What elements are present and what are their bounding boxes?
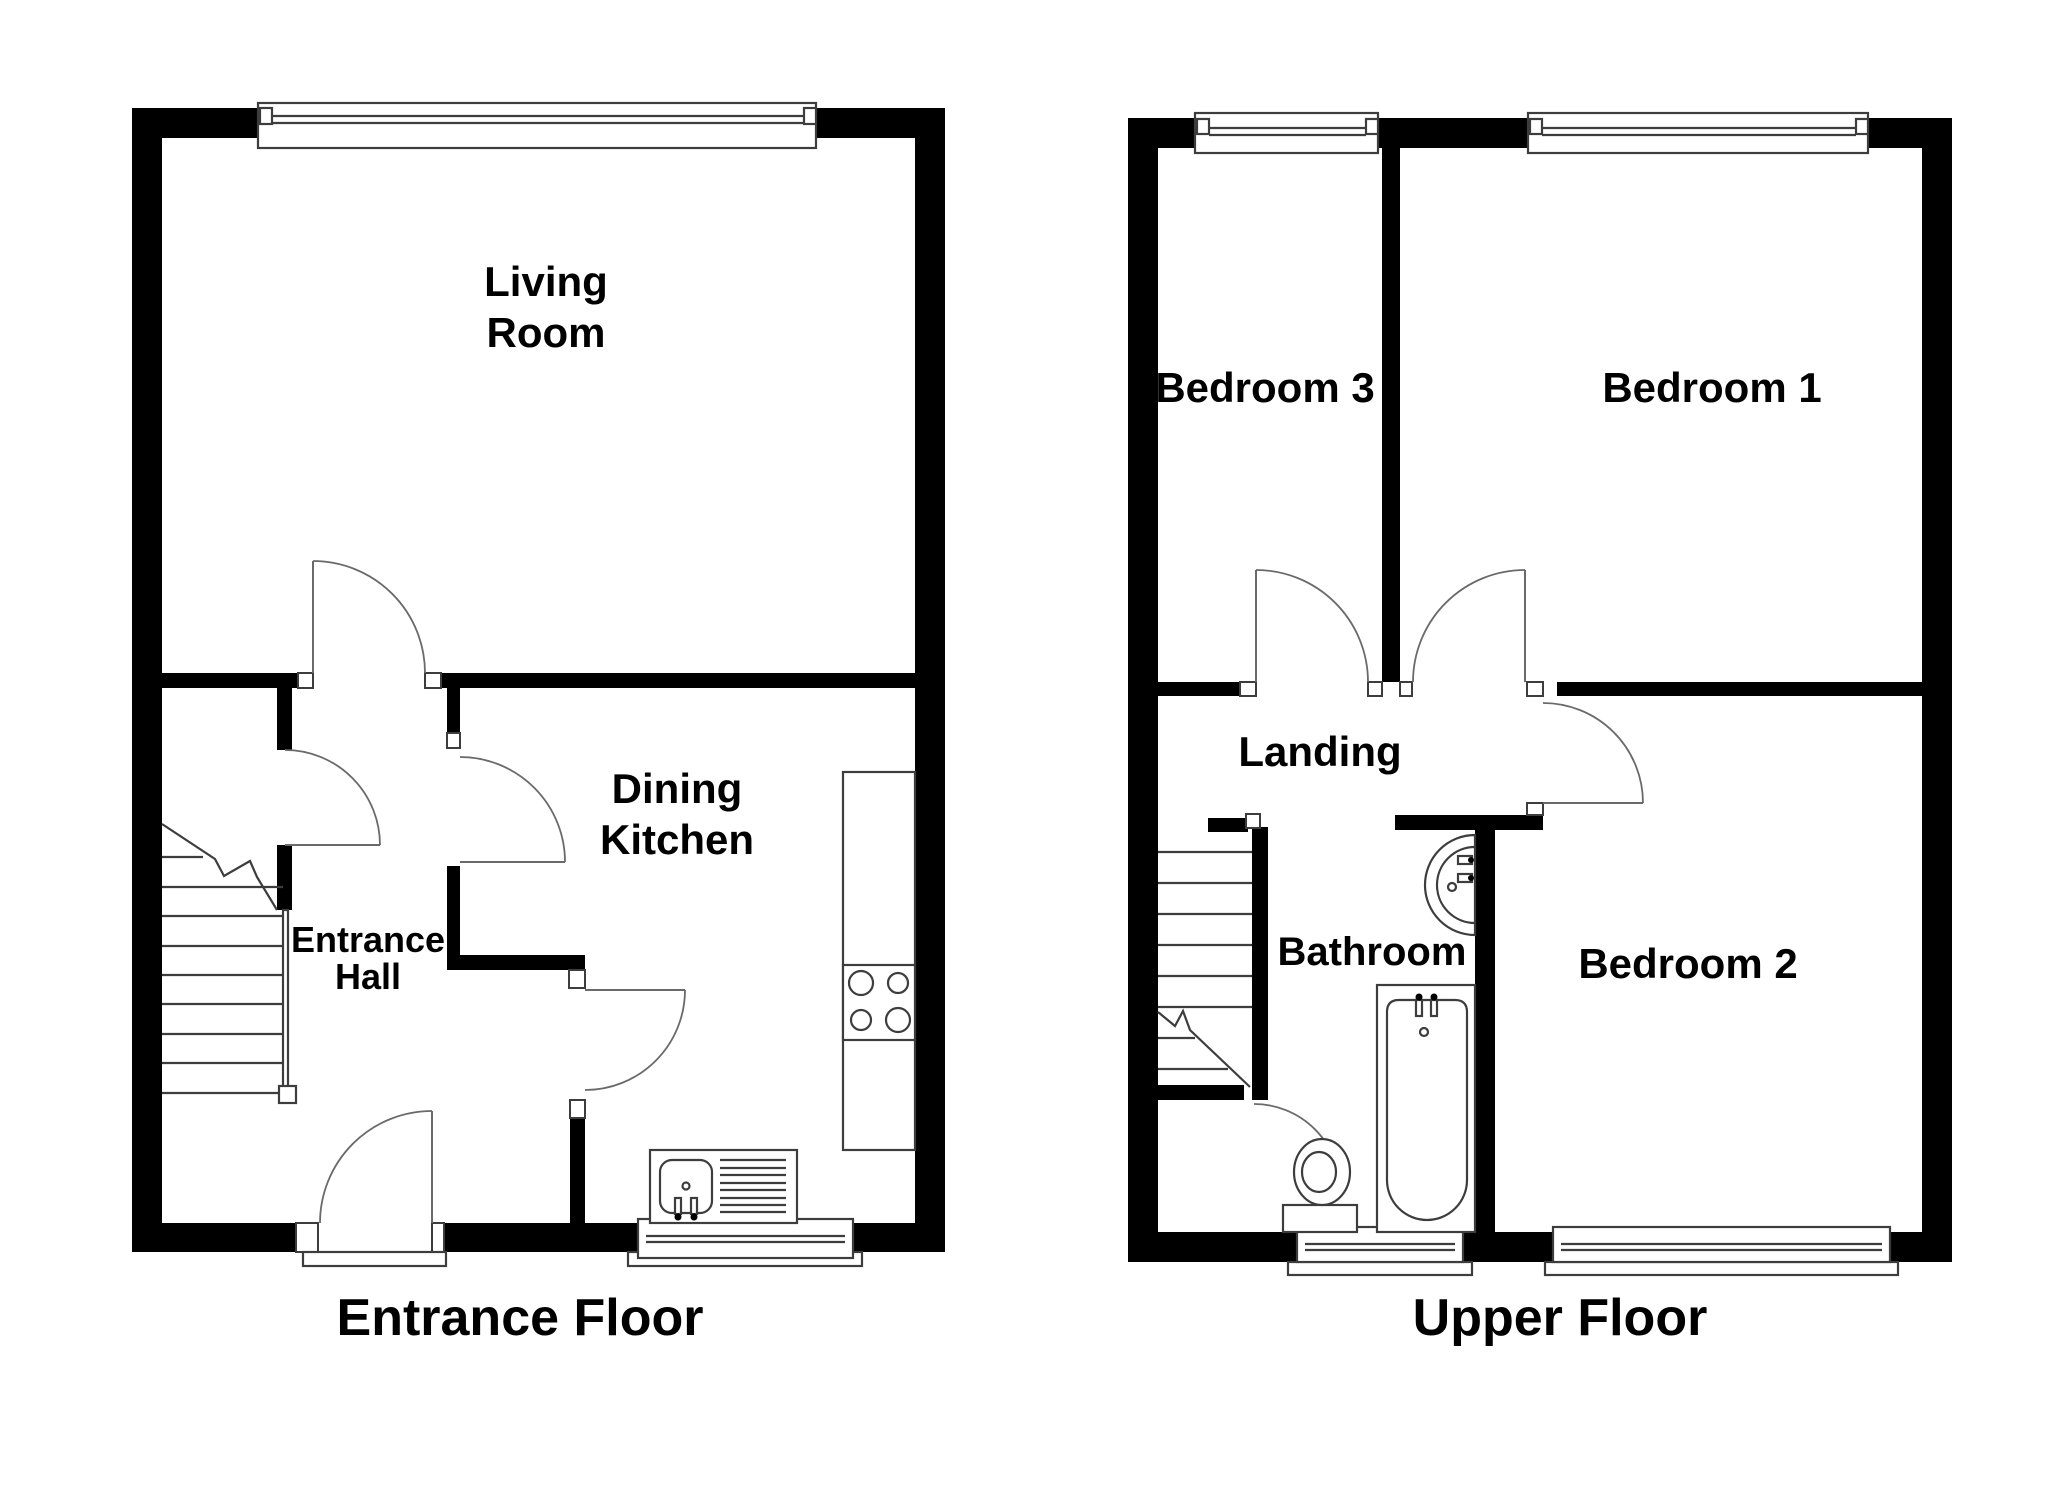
bathroom-window-icon [1288,1227,1472,1275]
entrance-interior-walls [162,673,915,1223]
upper-staircase-icon [1158,852,1252,1087]
staircase-icon [162,824,296,1103]
kitchen-door-icon [460,757,565,862]
upper-floor: Bedroom 3 Bedroom 1 Landing Bathroom Bed… [1128,113,1952,1347]
bedroom1-door-icon [1413,570,1525,682]
entrance-hall-label-2: Hall [335,956,401,997]
landing-label: Landing [1238,728,1401,775]
bedroom3-window-icon [1195,113,1378,153]
bedroom1-window-icon [1528,113,1868,153]
bedroom1-label: Bedroom 1 [1602,364,1821,411]
dining-kitchen-label: Dining [612,765,743,812]
floor-plan-canvas: Living Room Dining Kitchen Entrance Hall… [0,0,2048,1489]
living-room-label: Living [484,258,608,305]
floorplan-page: Living Room Dining Kitchen Entrance Hall… [0,0,2048,1489]
bedroom3-door-icon [1256,570,1368,682]
upper-floor-title: Upper Floor [1413,1289,1708,1347]
bathroom-label: Bathroom [1278,930,1467,974]
living-room-label-2: Room [487,309,606,356]
entrance-hall-label: Entrance [291,919,445,960]
living-room-window-icon [258,103,816,148]
bedroom2-window-icon [1545,1227,1898,1275]
entrance-floor: Living Room Dining Kitchen Entrance Hall… [132,103,945,1347]
dining-kitchen-label-2: Kitchen [600,816,754,863]
toilet-icon [1283,1139,1357,1232]
stairs-door-icon [285,750,380,845]
kitchen-window-icon [628,1219,862,1266]
kitchen-sink-icon [650,1150,797,1223]
porch-step-icon [303,1252,446,1266]
kitchen-counter-icon [843,772,915,1150]
basin-icon [1425,835,1475,935]
bedroom2-door-icon [1543,703,1643,803]
hall-kitchen-door-icon [585,990,685,1090]
bedroom2-label: Bedroom 2 [1578,940,1797,987]
bath-icon [1377,985,1475,1232]
bedroom3-label: Bedroom 3 [1155,364,1374,411]
entrance-floor-title: Entrance Floor [337,1289,704,1347]
living-room-door-icon [313,561,425,673]
front-door-icon [320,1111,432,1223]
